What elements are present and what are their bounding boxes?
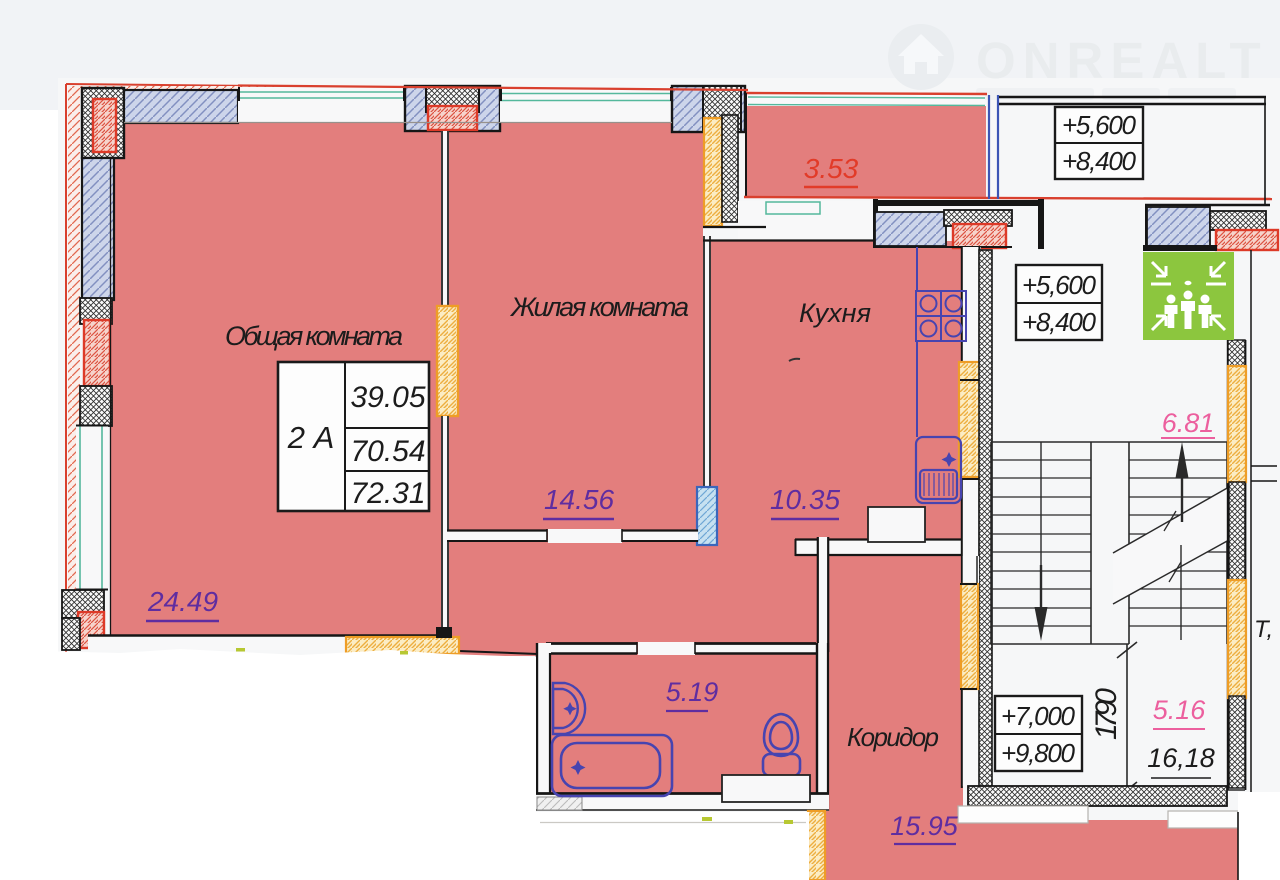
svg-text:+7,000: +7,000 — [1001, 701, 1076, 731]
svg-text:16,18: 16,18 — [1147, 743, 1215, 773]
svg-text:5.16: 5.16 — [1153, 695, 1207, 725]
svg-text:14.56: 14.56 — [544, 484, 614, 515]
svg-text:Коридор: Коридор — [847, 722, 939, 752]
svg-text:72.31: 72.31 — [350, 477, 425, 510]
svg-text:+5,600: +5,600 — [1062, 110, 1137, 140]
svg-text:24.49: 24.49 — [147, 586, 218, 617]
svg-text:70.54: 70.54 — [350, 435, 425, 468]
svg-text:Общая комната: Общая комната — [225, 321, 403, 351]
svg-text:2 А: 2 А — [287, 420, 335, 455]
svg-text:+8,400: +8,400 — [1022, 307, 1097, 337]
svg-text:Жилая комната: Жилая комната — [509, 292, 689, 322]
svg-text:10.35: 10.35 — [770, 484, 840, 515]
svg-text:6.81: 6.81 — [1162, 408, 1215, 438]
svg-text:Т,: Т, — [1254, 616, 1273, 643]
svg-text:+9,800: +9,800 — [1001, 738, 1076, 768]
svg-text:15.95: 15.95 — [890, 811, 959, 841]
svg-text:+8,400: +8,400 — [1062, 146, 1137, 176]
svg-text:ONREALT: ONREALT — [976, 32, 1268, 89]
svg-text:Кухня: Кухня — [799, 298, 871, 328]
svg-text:5.19: 5.19 — [666, 677, 719, 707]
svg-text:+5,600: +5,600 — [1022, 270, 1097, 300]
svg-text:3.53: 3.53 — [804, 153, 859, 184]
svg-text:39.05: 39.05 — [350, 381, 425, 414]
svg-text:1790: 1790 — [1090, 688, 1123, 740]
